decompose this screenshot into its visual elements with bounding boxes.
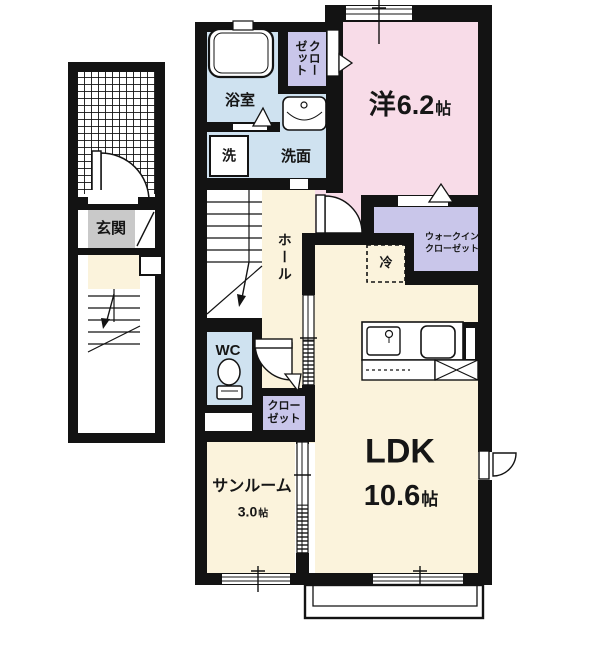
entrance-porch <box>78 72 155 201</box>
closet-upper-door <box>327 30 339 76</box>
closet-upper-col-left: ゼット <box>294 40 307 76</box>
label-ldk-name: LDK <box>365 433 435 470</box>
wc-door-leaf <box>255 339 292 348</box>
stove <box>421 326 455 358</box>
kitchen-sink <box>367 327 400 355</box>
door-sill <box>88 190 138 204</box>
label-wc: WC <box>216 343 241 360</box>
window-ldk-bottom <box>373 574 463 584</box>
wall <box>195 318 262 332</box>
stair-landing <box>88 255 140 289</box>
slider-hatch <box>297 505 308 553</box>
ldk-size: 10.6 <box>364 481 420 513</box>
wall <box>288 86 326 94</box>
wall <box>302 233 414 245</box>
wall <box>155 62 165 443</box>
bedroom-name: 洋 <box>369 91 396 121</box>
label-hall: ホール <box>276 233 291 284</box>
closet-upper-col-right: クロー <box>307 40 320 76</box>
wall <box>302 233 315 295</box>
washroom-door-slot <box>290 179 308 189</box>
bedroom-size: 6.2 <box>397 91 435 121</box>
balcony <box>305 585 483 618</box>
bathtub <box>209 29 273 77</box>
wall <box>361 195 374 235</box>
wc-niche <box>205 413 252 431</box>
window-sunroom-bottom <box>222 574 290 584</box>
bedroom-unit: 帖 <box>435 101 451 119</box>
vanity-faucet-icon <box>301 102 307 108</box>
wall <box>68 433 165 443</box>
label-sunroom-size: 3.0 帖 <box>238 504 268 519</box>
label-washer: 洗 <box>222 148 236 163</box>
label-bedroom: 洋 6.2 帖 <box>369 91 452 121</box>
label-bathroom: 浴室 <box>225 93 255 110</box>
label-closet-lower: クローゼット <box>263 400 305 426</box>
ldk-unit: 帖 <box>421 491 438 510</box>
label-ldk-size: 10.6 帖 <box>364 481 438 513</box>
wall <box>68 62 78 443</box>
wall <box>478 5 492 452</box>
sunroom-size: 3.0 <box>238 504 257 519</box>
floor-plan-page: 玄関 浴室 洗 洗面 ゼット クロー 洋 6.2 帖 ウォークインクローゼット … <box>0 0 600 663</box>
label-entrance: 玄関 <box>96 221 126 238</box>
landing-window <box>140 256 162 275</box>
interior-stairs <box>207 190 262 318</box>
label-sunroom-name: サンルーム <box>212 478 292 496</box>
label-walk-in-closet: ウォークインクローゼット <box>423 231 481 254</box>
floor-plan-drawing <box>0 0 600 663</box>
wall <box>405 271 492 285</box>
exterior-stairs <box>88 289 140 433</box>
wall <box>478 480 492 585</box>
wall <box>78 248 155 255</box>
wall <box>195 22 207 585</box>
wall <box>278 22 288 94</box>
exterior-door-leaf <box>479 451 489 479</box>
bathtub-handle <box>233 21 253 30</box>
label-refrigerator: 冷 <box>379 256 392 270</box>
balcony-outline <box>305 585 483 618</box>
wall <box>296 553 309 575</box>
label-closet-upper: ゼット クロー <box>294 40 320 76</box>
bedroom-door-leaf <box>316 195 325 233</box>
sunroom-unit: 帖 <box>258 508 268 519</box>
toilet <box>218 359 240 385</box>
toilet-tank <box>217 386 242 399</box>
stairwell-unit <box>207 190 262 318</box>
label-washroom: 洗面 <box>281 149 311 166</box>
slider-hatch <box>303 340 314 385</box>
kitchen-end-slot <box>466 328 475 359</box>
kitchen-faucet-icon <box>386 331 393 338</box>
wall <box>195 178 343 190</box>
wall <box>68 62 165 72</box>
